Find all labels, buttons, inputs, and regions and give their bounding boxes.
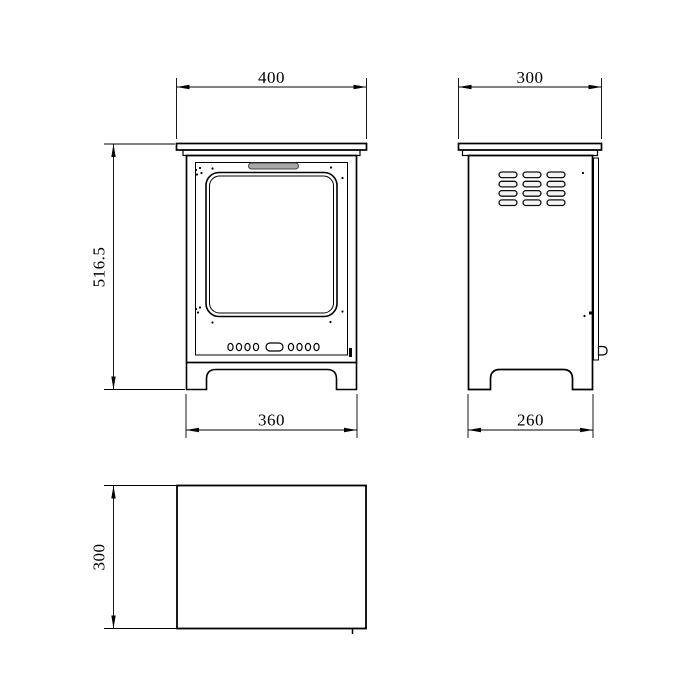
top-view-outline [177, 486, 366, 629]
dim-front-top-width [177, 78, 367, 139]
side-door-knob [599, 347, 608, 356]
front-glass-inner [210, 176, 334, 313]
dim-label-top-view-depth: 300 [90, 544, 109, 571]
arrow-right-icon [344, 428, 357, 432]
front-center-button [266, 343, 283, 351]
arrow-left-icon [186, 428, 199, 432]
arrow-left-icon [177, 85, 190, 89]
dim-label-side-top-depth: 300 [517, 68, 544, 87]
side-screw-dots [582, 172, 593, 317]
front-legs [187, 363, 357, 390]
side-top-plate [459, 144, 602, 151]
front-door-latch [349, 348, 352, 357]
arrow-down-icon [111, 377, 115, 390]
front-top-plate [177, 144, 367, 151]
front-body [187, 156, 357, 363]
front-screw-dots [195, 166, 344, 323]
dimension-lines [104, 78, 602, 629]
arrow-right-icon [354, 85, 367, 89]
front-door-panel [196, 163, 348, 356]
side-door-edge-strip [594, 158, 599, 360]
dim-label-front-base-width: 360 [258, 411, 285, 430]
dim-top-view-depth [104, 486, 176, 629]
front-control-buttons [228, 343, 319, 351]
technical-drawing-canvas: 400 300 516.5 360 260 300 [0, 0, 700, 700]
arrow-up-icon [111, 144, 115, 157]
arrow-left-icon [468, 428, 481, 432]
side-view [459, 144, 608, 390]
dim-label-front-height: 516.5 [90, 247, 109, 288]
arrow-right-icon [580, 428, 593, 432]
drawing-sheet: 400 300 516.5 360 260 300 [0, 0, 700, 700]
front-glass-outer [206, 173, 337, 317]
dim-front-height [104, 144, 185, 390]
dim-label-side-base-depth: 260 [517, 411, 544, 430]
dim-label-front-top-width: 400 [258, 68, 285, 87]
top-view [177, 486, 366, 635]
arrow-right-icon [589, 85, 602, 89]
side-vent-slots [499, 172, 565, 206]
arrow-down-icon [111, 616, 115, 629]
dim-side-top-depth [459, 78, 602, 139]
arrow-up-icon [111, 486, 115, 499]
arrow-left-icon [459, 85, 472, 89]
front-view [177, 144, 367, 390]
front-handle-slot [249, 163, 299, 169]
